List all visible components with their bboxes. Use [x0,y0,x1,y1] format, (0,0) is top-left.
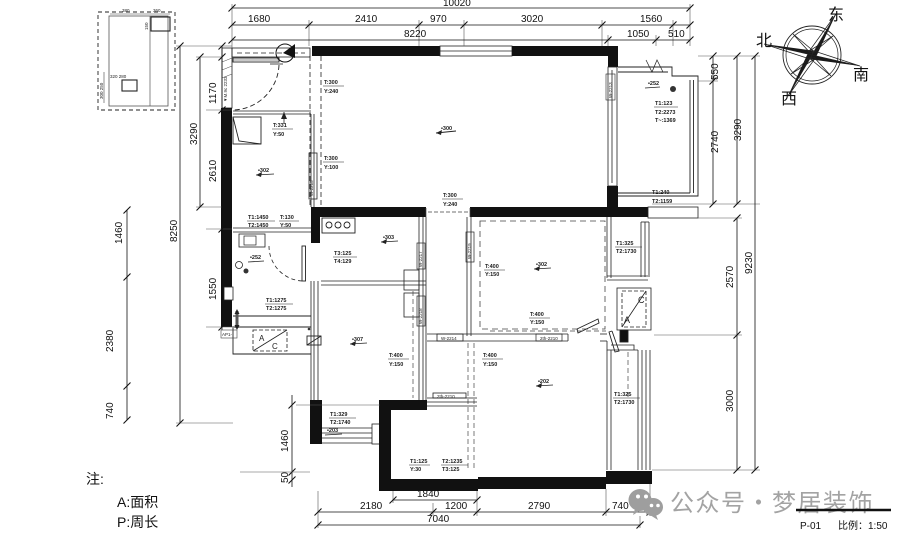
svg-text:T~:1369: T~:1369 [655,118,676,124]
svg-text:8220: 8220 [404,29,427,40]
svg-text:970: 970 [430,14,447,25]
svg-text:T4:129: T4:129 [334,259,351,265]
svg-text:西: 西 [781,91,797,108]
svg-text:Y:150: Y:150 [530,320,544,326]
svg-text:2570: 2570 [725,265,736,288]
svg-text:360: 360 [153,8,161,13]
svg-text:注:: 注: [86,471,104,487]
svg-text:Y:150: Y:150 [389,362,403,368]
svg-text:Y:30: Y:30 [410,467,421,473]
svg-text:•252: •252 [648,81,659,87]
svg-text:AP1-: AP1- [222,332,233,337]
svg-text:T:300: T:300 [324,156,338,162]
svg-text:380: 380 [122,8,130,13]
svg-text:•202: •202 [538,379,549,385]
svg-text:•302: •302 [536,262,547,268]
svg-text:比例：1:50: 比例：1:50 [838,519,888,532]
svg-text:1200: 1200 [445,501,468,512]
svg-text:T:130: T:130 [280,215,294,221]
svg-text:2380: 2380 [105,329,116,352]
svg-text:1560: 1560 [640,14,663,25]
svg-text:1460: 1460 [114,221,125,244]
svg-text:3290: 3290 [189,122,200,145]
svg-text:T2:1235: T2:1235 [442,459,463,465]
svg-text:1170: 1170 [208,82,219,104]
svg-text:2180: 2180 [360,501,383,512]
svg-text:7040: 7040 [427,514,450,525]
svg-text:T2:2273: T2:2273 [655,110,676,116]
svg-text:•252: •252 [250,255,261,261]
svg-text:▼M.9c 2233: ▼M.9c 2233 [223,76,228,102]
svg-text:1680: 1680 [248,14,271,25]
svg-text:2th-2210: 2th-2210 [540,336,558,341]
svg-text:T:400: T:400 [483,353,497,359]
svg-text:W-2213: W-2213 [608,82,613,98]
svg-text:3000: 3000 [725,389,736,412]
svg-text:1460: 1460 [280,429,291,452]
svg-text:2th-2210: 2th-2210 [437,394,455,399]
svg-text:T:400: T:400 [485,264,499,270]
svg-text:T2:1740: T2:1740 [330,420,351,426]
svg-text:T1:329: T1:329 [330,412,347,418]
svg-text:W-2219: W-2219 [467,243,472,259]
svg-text:Y:50: Y:50 [273,132,284,138]
svg-text:2610: 2610 [208,159,219,182]
svg-text:•303: •303 [383,235,394,241]
svg-text:P-01: P-01 [800,521,822,532]
svg-text:3290: 3290 [733,118,744,141]
svg-text:Y:150: Y:150 [485,272,499,278]
svg-text:东: 东 [828,6,844,24]
svg-text:•300: •300 [441,126,452,132]
svg-text:Y:240: Y:240 [324,89,338,95]
svg-text:T2:1730: T2:1730 [614,400,635,406]
svg-text:2740: 2740 [710,130,721,153]
svg-text:T1:325: T1:325 [616,241,633,247]
svg-text:北: 北 [756,32,772,50]
svg-text:T:300: T:300 [443,193,457,199]
svg-text:公众号・梦居装饰: 公众号・梦居装饰 [670,490,874,517]
svg-text:C: C [638,295,645,305]
svg-text:Y:240: Y:240 [443,202,457,208]
svg-text:P:周长: P:周长 [117,514,158,530]
svg-text:2790: 2790 [528,501,551,512]
svg-text:3020: 3020 [521,14,544,25]
svg-text:W-2215: W-2215 [309,180,314,196]
svg-text:9230: 9230 [744,251,755,274]
svg-text:T:400: T:400 [389,353,403,359]
svg-text:1840: 1840 [417,489,440,500]
svg-text:•203: •203 [327,428,338,434]
svg-text:•307: •307 [352,337,363,343]
svg-text:50: 50 [280,471,291,483]
svg-text:740: 740 [612,501,629,512]
svg-text:T3:125: T3:125 [442,467,459,473]
svg-text:T1:125: T1:125 [410,459,427,465]
svg-text:T1:240: T1:240 [652,190,669,196]
svg-text:1050: 1050 [627,29,650,40]
svg-text:1550: 1550 [208,277,219,300]
svg-text:A: A [259,334,265,343]
svg-text:南: 南 [853,66,869,84]
svg-text:2410: 2410 [355,14,378,25]
svg-text:C: C [272,342,278,351]
svg-text:T2:1275: T2:1275 [266,306,287,312]
svg-text:550: 550 [710,63,721,80]
svg-text:T:300: T:300 [324,80,338,86]
svg-text:A:面积: A:面积 [117,494,158,510]
svg-text:W-2214: W-2214 [441,336,457,341]
svg-text:T2:1450: T2:1450 [248,223,269,229]
svg-text:T1:1275: T1:1275 [266,298,287,304]
svg-text:150: 150 [144,22,149,30]
svg-text:T:331: T:331 [273,123,287,129]
svg-text:Y:50: Y:50 [280,223,291,229]
svg-text:740: 740 [105,402,116,419]
svg-text:10020: 10020 [443,0,471,9]
svg-text:510: 510 [668,29,685,40]
svg-text:8250: 8250 [169,219,180,242]
svg-text:T1:325: T1:325 [614,392,631,398]
svg-text:W-2217: W-2217 [418,251,423,267]
svg-text:•302: •302 [258,168,269,174]
svg-text:Y:100: Y:100 [324,165,338,171]
svg-text:T1:1450: T1:1450 [248,215,269,221]
svg-text:T2:1730: T2:1730 [616,249,637,255]
svg-text:320 280: 320 280 [110,74,127,79]
svg-text:A: A [624,315,630,325]
svg-text:T3:125: T3:125 [334,251,351,257]
svg-text:T1:123: T1:123 [655,101,672,107]
svg-text:T:400: T:400 [530,312,544,318]
svg-text:300 250: 300 250 [99,82,104,99]
svg-text:Y:150: Y:150 [483,362,497,368]
